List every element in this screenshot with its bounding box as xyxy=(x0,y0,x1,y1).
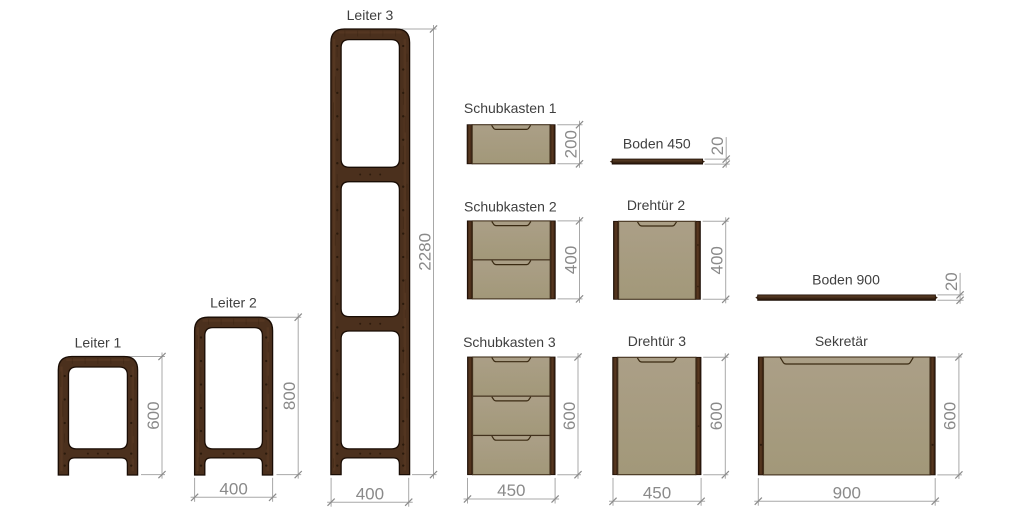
svg-text:450: 450 xyxy=(497,481,525,500)
svg-text:400: 400 xyxy=(219,480,247,499)
svg-text:200: 200 xyxy=(561,130,580,158)
svg-text:400: 400 xyxy=(561,246,580,274)
svg-text:Sekretär: Sekretär xyxy=(815,333,868,349)
svg-text:Drehtür 2: Drehtür 2 xyxy=(627,197,686,213)
svg-text:400: 400 xyxy=(356,484,384,503)
svg-text:600: 600 xyxy=(707,402,726,430)
svg-text:Boden 450: Boden 450 xyxy=(623,135,691,151)
svg-text:Leiter 3: Leiter 3 xyxy=(347,7,394,23)
svg-text:600: 600 xyxy=(560,402,579,430)
svg-text:Boden 900: Boden 900 xyxy=(812,272,880,288)
svg-text:Schubkasten 3: Schubkasten 3 xyxy=(463,334,556,350)
svg-text:Drehtür 3: Drehtür 3 xyxy=(628,333,687,349)
svg-text:Schubkasten 2: Schubkasten 2 xyxy=(464,198,557,214)
svg-text:Leiter 2: Leiter 2 xyxy=(210,295,257,311)
svg-text:Schubkasten 1: Schubkasten 1 xyxy=(464,100,557,116)
svg-text:Leiter 1: Leiter 1 xyxy=(75,335,122,351)
svg-text:600: 600 xyxy=(144,401,163,429)
svg-text:800: 800 xyxy=(280,382,299,410)
svg-text:450: 450 xyxy=(643,484,671,503)
svg-text:20: 20 xyxy=(942,272,961,291)
svg-text:900: 900 xyxy=(833,483,861,502)
svg-text:2280: 2280 xyxy=(415,233,434,271)
svg-text:20: 20 xyxy=(708,136,727,155)
svg-text:600: 600 xyxy=(941,402,960,430)
svg-text:400: 400 xyxy=(708,246,727,274)
